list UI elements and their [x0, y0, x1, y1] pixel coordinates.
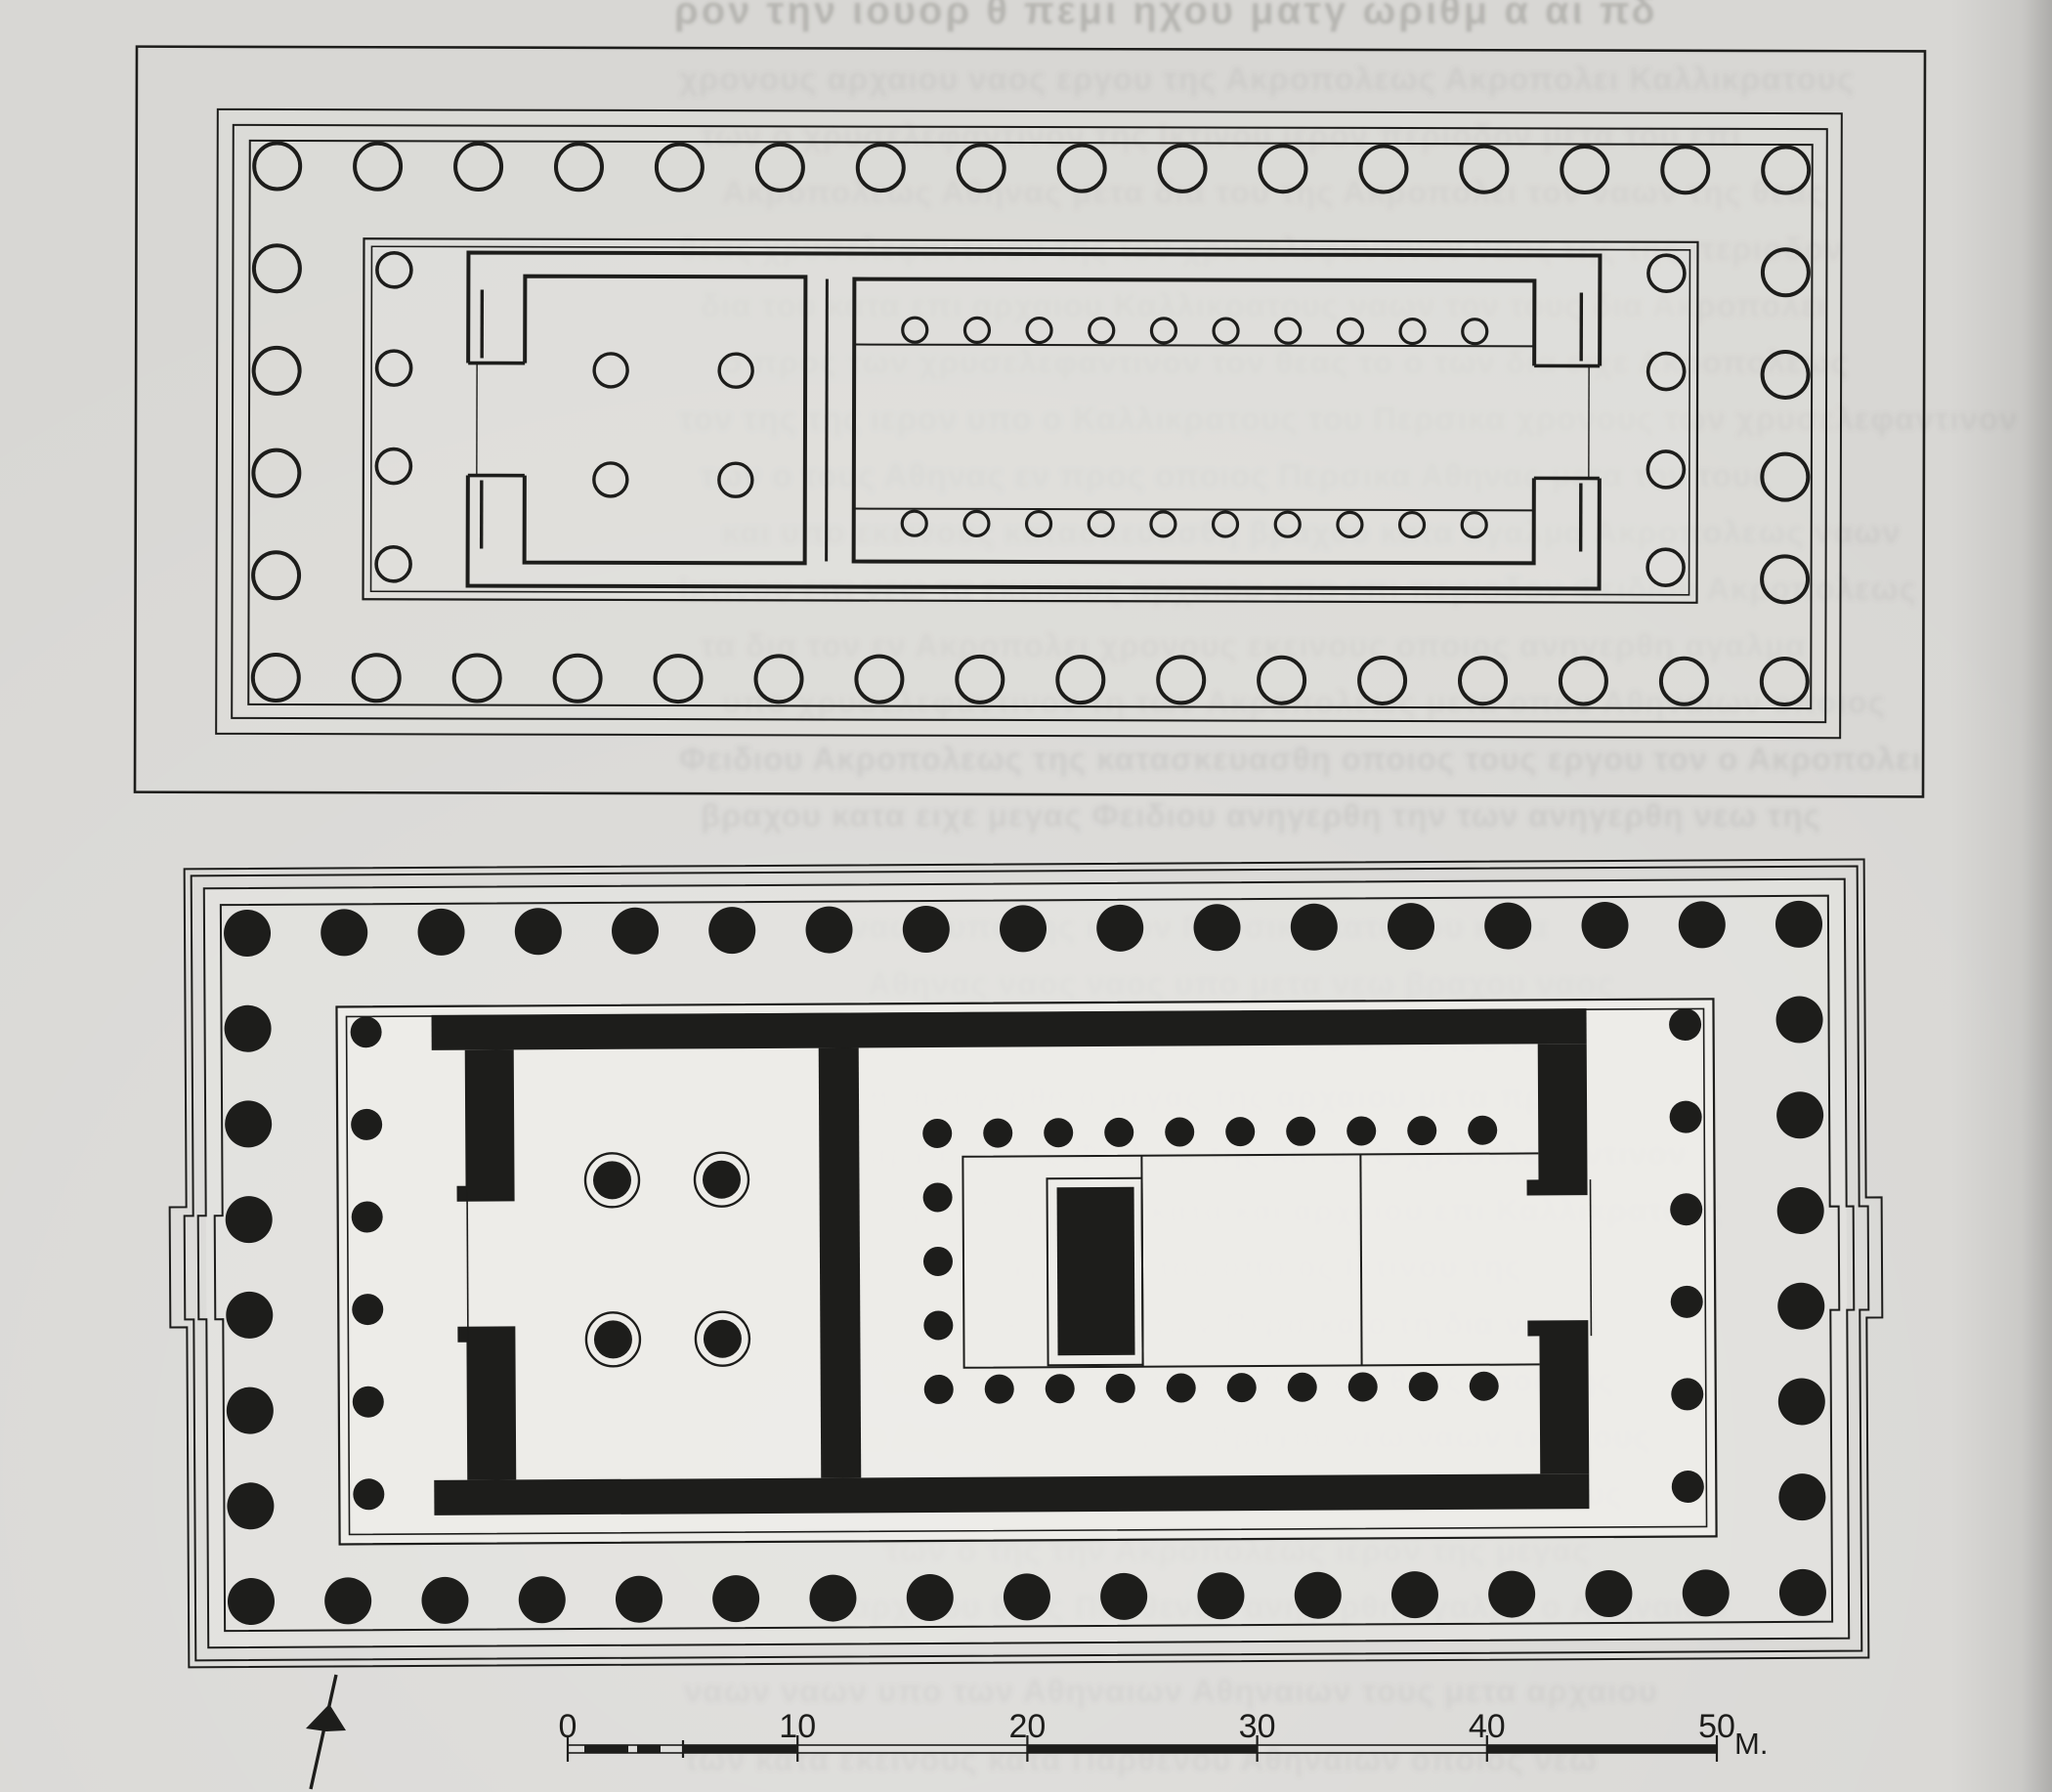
svg-text:30: 30 — [1239, 1708, 1276, 1745]
svg-text:50: 50 — [1698, 1708, 1735, 1745]
svg-text:0: 0 — [559, 1708, 577, 1745]
svg-text:20: 20 — [1008, 1708, 1046, 1745]
svg-text:M.: M. — [1734, 1727, 1768, 1761]
svg-text:40: 40 — [1469, 1708, 1506, 1745]
svg-text:10: 10 — [779, 1708, 816, 1745]
